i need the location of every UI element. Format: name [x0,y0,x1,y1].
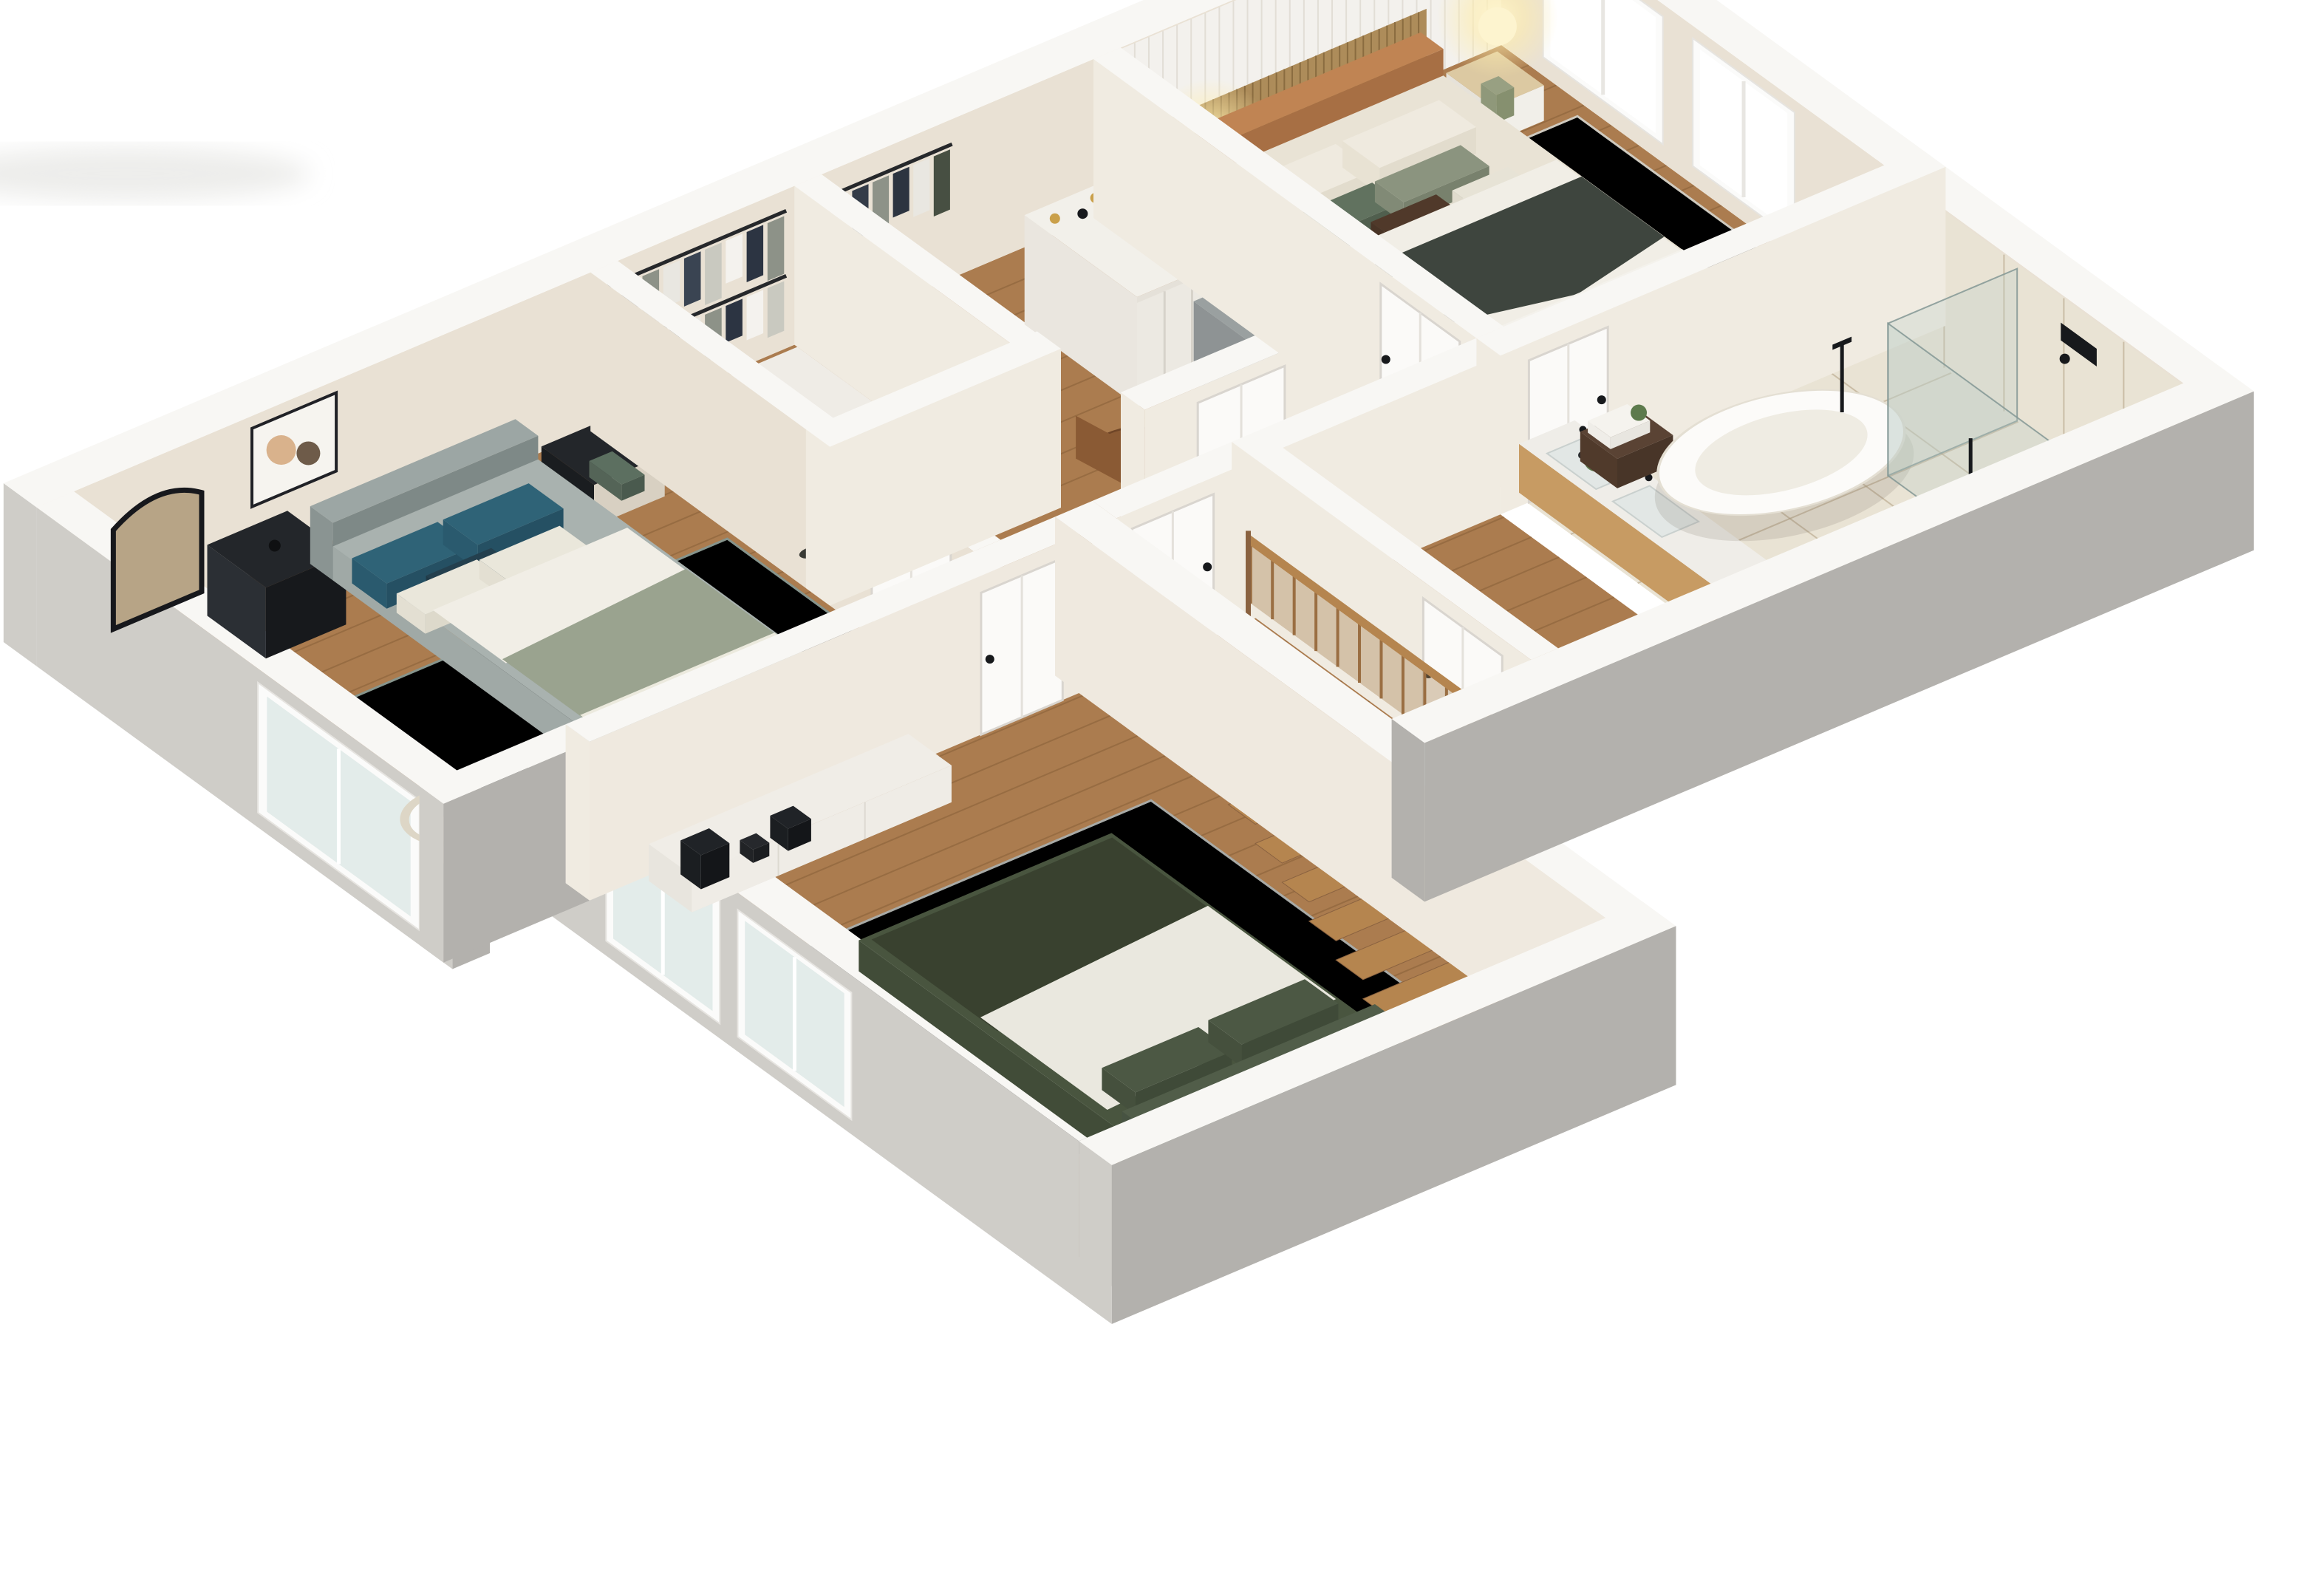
door-master-handle [1382,355,1390,364]
closet-rail-upper-garment [684,251,701,307]
shelf-shoe-2 [1077,208,1088,219]
lamp-shade-right [1478,7,1517,46]
door-landing-handle [1203,562,1212,571]
closet-rail-upper-garment [768,216,785,282]
dressing-rail-north-garment [934,149,950,216]
closet-rail-upper-garment [747,225,764,282]
shower-arm [2060,354,2070,364]
stool-plant [1631,405,1647,421]
scene-container [0,0,2314,1596]
floorplan-svg [0,0,2314,1596]
door-bedroom3-handle [986,655,994,664]
ambient-shadow [0,147,310,200]
wall-notch-exterior-west-face [420,786,443,963]
dresser-decor [269,539,281,551]
closet-rail-upper-garment [705,242,722,305]
closet-rail-lower-garment [768,282,785,338]
closet-rail-lower-garment [726,299,743,342]
closet-rail-lower-garment [747,290,764,340]
door-bathroom-handle [1597,395,1606,404]
wall-bathroom-north-west-face [1476,338,1500,515]
wall-closet-south-west-face [806,429,830,606]
wall-bedroom3-south-west-face [1079,1141,1112,1324]
closet-rail-upper-garment [726,233,743,283]
dressing-rail-north-garment [893,167,909,218]
wall-north-west-face [4,483,37,666]
shelf-shoe-1 [1050,214,1060,224]
art-abstract-shape-1 [267,435,296,465]
art-abstract-shape-2 [296,441,320,465]
wall-bedroom3-north-west-face [566,724,590,901]
wall-main-south-west-face [1392,719,1425,902]
dressing-rail-north-garment [913,158,929,217]
